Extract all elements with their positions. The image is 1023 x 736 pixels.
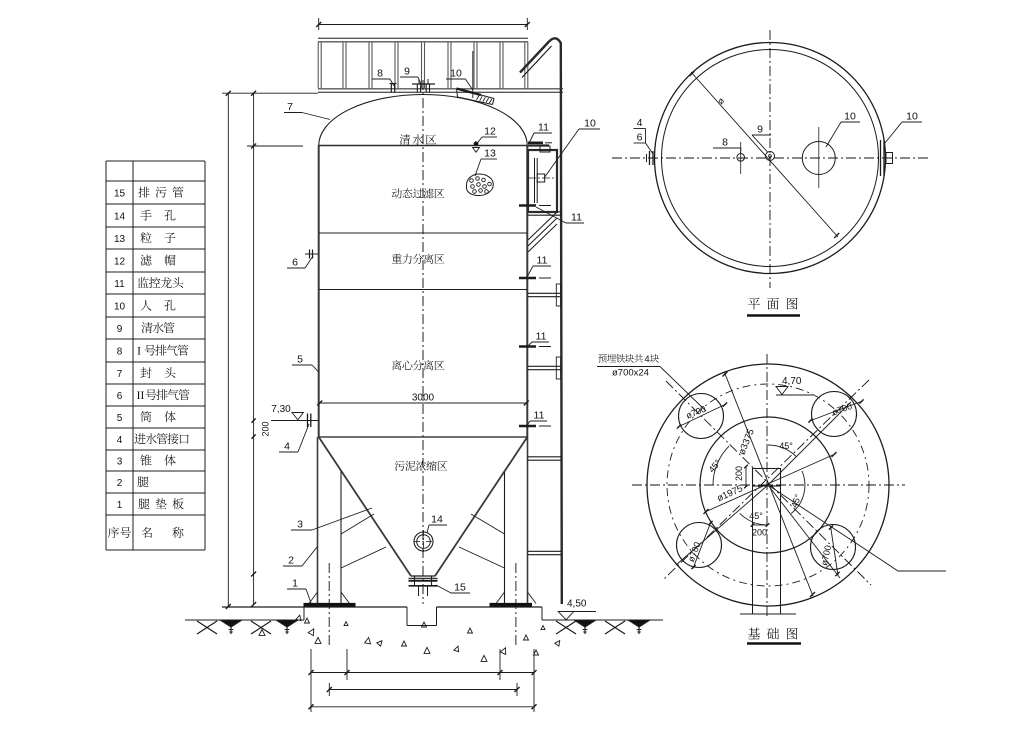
svg-text:11: 11 — [571, 212, 582, 224]
svg-text:10: 10 — [906, 111, 918, 123]
svg-text:15: 15 — [114, 188, 126, 199]
svg-text:6: 6 — [637, 132, 643, 144]
svg-text:12: 12 — [484, 126, 496, 138]
svg-text:2: 2 — [117, 478, 123, 489]
svg-text:6: 6 — [292, 257, 298, 269]
svg-text:7,30: 7,30 — [271, 404, 291, 415]
svg-text:11: 11 — [538, 122, 549, 134]
svg-text:1: 1 — [292, 578, 298, 590]
svg-text:4: 4 — [644, 354, 649, 365]
svg-text:6: 6 — [117, 391, 123, 402]
svg-text:15: 15 — [454, 582, 466, 594]
svg-text:7: 7 — [287, 101, 293, 113]
svg-text:4: 4 — [117, 435, 123, 446]
svg-text:ø700x24: ø700x24 — [612, 368, 649, 379]
svg-text:2: 2 — [288, 555, 294, 567]
svg-text:14: 14 — [431, 514, 443, 526]
svg-text:8: 8 — [722, 137, 728, 149]
svg-text:5: 5 — [117, 413, 123, 424]
svg-text:11: 11 — [537, 255, 548, 267]
svg-text:45°: 45° — [779, 441, 793, 451]
svg-text:8: 8 — [117, 346, 123, 357]
svg-text:10: 10 — [844, 111, 856, 123]
svg-text:200: 200 — [261, 421, 271, 436]
svg-text:11: 11 — [114, 279, 125, 290]
svg-text:3: 3 — [117, 456, 123, 467]
svg-text:13: 13 — [484, 148, 496, 160]
svg-text:9: 9 — [117, 324, 123, 335]
svg-text:I: I — [137, 346, 141, 358]
svg-text:11: 11 — [534, 410, 545, 422]
svg-text:10: 10 — [584, 118, 596, 130]
svg-text:4,70: 4,70 — [782, 376, 802, 387]
svg-text:10: 10 — [114, 301, 126, 312]
svg-text:3000: 3000 — [412, 393, 435, 404]
svg-text:45°: 45° — [749, 511, 763, 521]
svg-text:13: 13 — [114, 234, 126, 245]
svg-text:3: 3 — [297, 519, 303, 531]
svg-text:4: 4 — [284, 441, 290, 453]
svg-text:8: 8 — [377, 68, 383, 80]
svg-text:4,50: 4,50 — [567, 599, 587, 610]
svg-text:4: 4 — [637, 117, 643, 129]
svg-text:200: 200 — [752, 528, 767, 538]
svg-text:200: 200 — [734, 466, 744, 481]
svg-text:1: 1 — [117, 500, 123, 511]
svg-text:14: 14 — [114, 211, 126, 222]
svg-text:9: 9 — [757, 124, 763, 136]
svg-text:10: 10 — [450, 68, 462, 80]
svg-text:5: 5 — [297, 354, 303, 366]
svg-text:II: II — [137, 390, 145, 402]
svg-text:7: 7 — [117, 369, 123, 380]
svg-text:11: 11 — [536, 331, 547, 343]
svg-text:9: 9 — [404, 66, 410, 78]
svg-text:12: 12 — [114, 256, 126, 267]
